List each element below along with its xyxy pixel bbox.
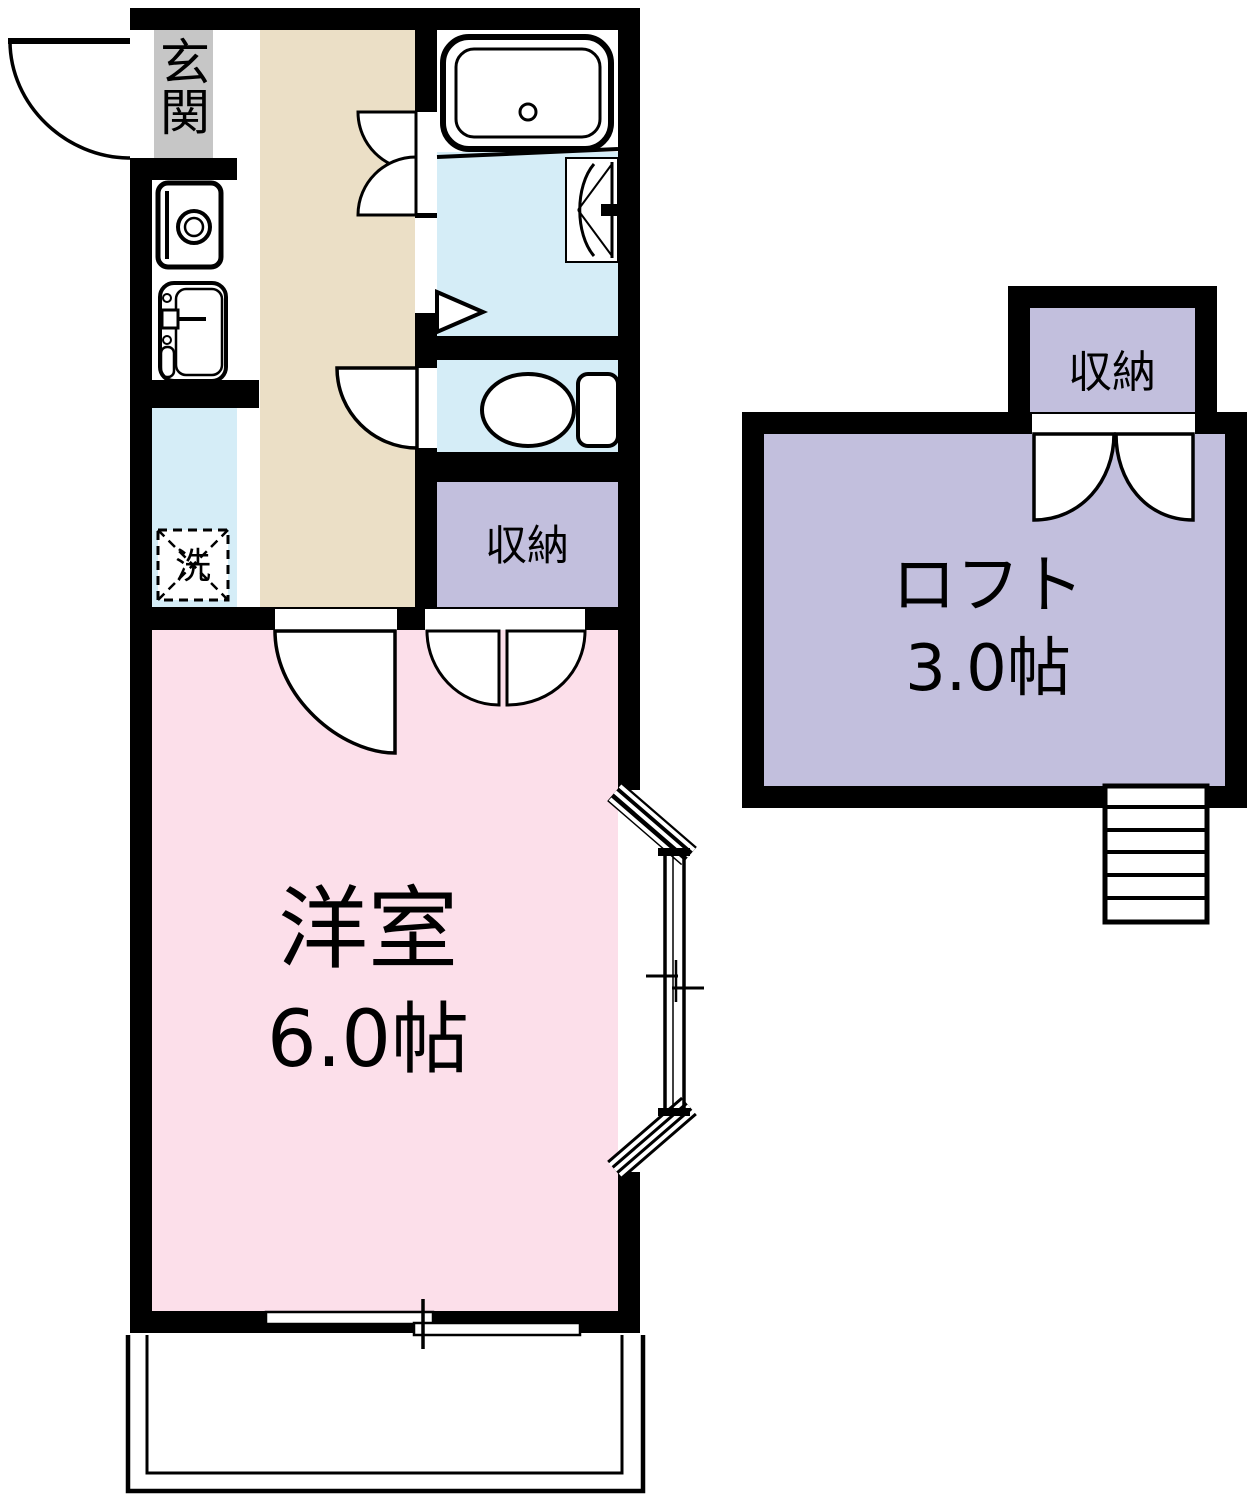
wall-counter-washroom	[130, 380, 259, 408]
bathtub	[437, 37, 618, 157]
storage-label: 収納	[485, 521, 569, 570]
kitchen-stove	[158, 183, 221, 267]
bathtub-inner	[456, 49, 600, 137]
wall-entrance-counter	[130, 158, 237, 180]
loft-storage-wall-left	[1008, 286, 1030, 434]
toilet-tank	[578, 374, 618, 446]
floor-plan: 玄関 洗 収納 洋室 6.0帖	[0, 0, 1249, 1500]
loft-storage-wall-right	[1195, 286, 1217, 434]
bathtub-drain	[520, 104, 536, 120]
loft-size-label: 3.0帖	[905, 632, 1071, 706]
wall-right-upper	[618, 8, 640, 790]
entrance-step-strip	[213, 28, 237, 158]
sliding-sash-right	[414, 1323, 580, 1335]
sliding-sash-left	[266, 1312, 433, 1324]
hall-strip	[237, 28, 260, 607]
wall-right-lower	[618, 1172, 640, 1333]
loft-storage-opening	[1032, 414, 1195, 434]
sink-faucet-base	[162, 310, 178, 328]
closet-door-opening	[425, 609, 585, 630]
loft-wall-left	[742, 412, 764, 808]
washer-label: 洗	[175, 546, 211, 587]
western-room-label: 洋室	[278, 877, 458, 982]
wall-bath-toilet	[415, 336, 640, 360]
western-room-size-label: 6.0帖	[267, 995, 469, 1085]
bathroom-bifold-door	[566, 158, 626, 262]
kitchen-sink	[160, 283, 226, 381]
toilet-fixture	[482, 374, 618, 446]
entrance-label: 玄関	[152, 36, 210, 136]
loft-label: ロフト	[892, 549, 1084, 623]
toilet-bowl	[482, 374, 574, 446]
loft-storage-wall-top	[1008, 286, 1217, 308]
entrance-opening	[128, 30, 154, 158]
sink-outline	[160, 283, 226, 381]
wall-left	[130, 8, 152, 1333]
bath-door-opening-lower	[415, 218, 437, 313]
bifold-handle	[601, 204, 626, 216]
loft-wall-right	[1225, 412, 1247, 808]
loft-storage-label: 収納	[1068, 347, 1156, 398]
wall-top	[130, 8, 640, 30]
loft-ladder	[1105, 786, 1207, 922]
room-door-opening	[275, 609, 397, 630]
bath-door-opening-upper	[415, 112, 437, 213]
wall-toilet-storage	[415, 452, 640, 482]
